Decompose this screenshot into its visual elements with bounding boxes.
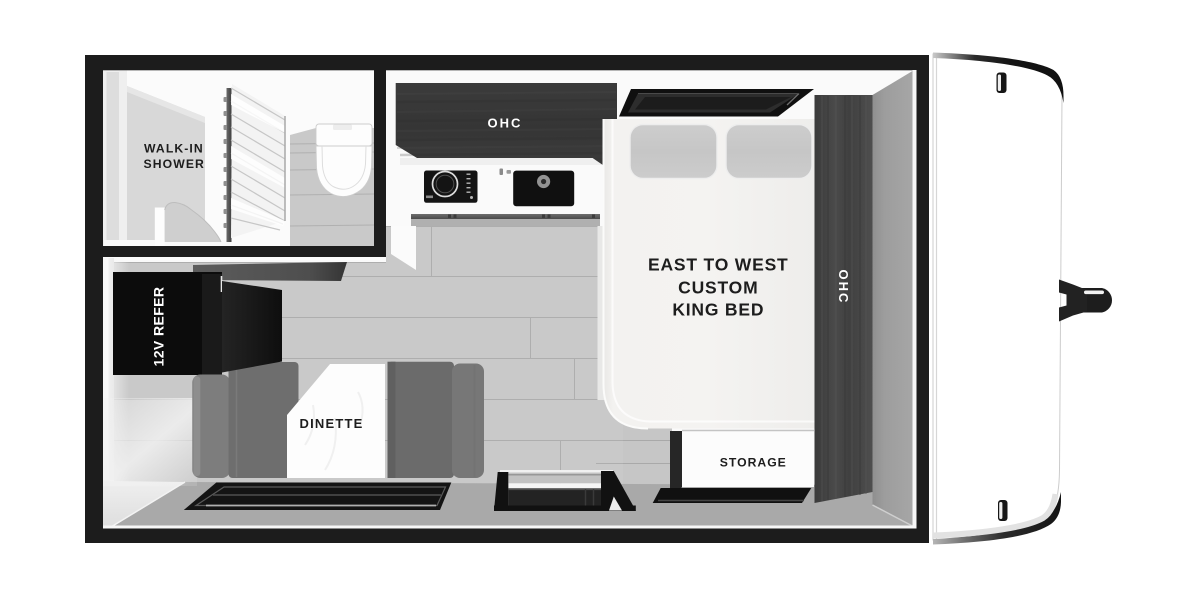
svg-text:DINETTE: DINETTE	[299, 416, 363, 431]
svg-text:EAST TO WEST: EAST TO WEST	[648, 255, 789, 275]
svg-text:WALK-IN: WALK-IN	[144, 142, 204, 156]
svg-text:STORAGE: STORAGE	[720, 456, 787, 470]
svg-text:OHC: OHC	[488, 116, 523, 131]
svg-text:OHC: OHC	[836, 270, 851, 305]
svg-text:SHOWER: SHOWER	[144, 157, 205, 171]
svg-text:12V REFER: 12V REFER	[151, 287, 167, 367]
svg-text:KING BED: KING BED	[672, 300, 764, 320]
svg-text:CUSTOM: CUSTOM	[678, 278, 758, 298]
